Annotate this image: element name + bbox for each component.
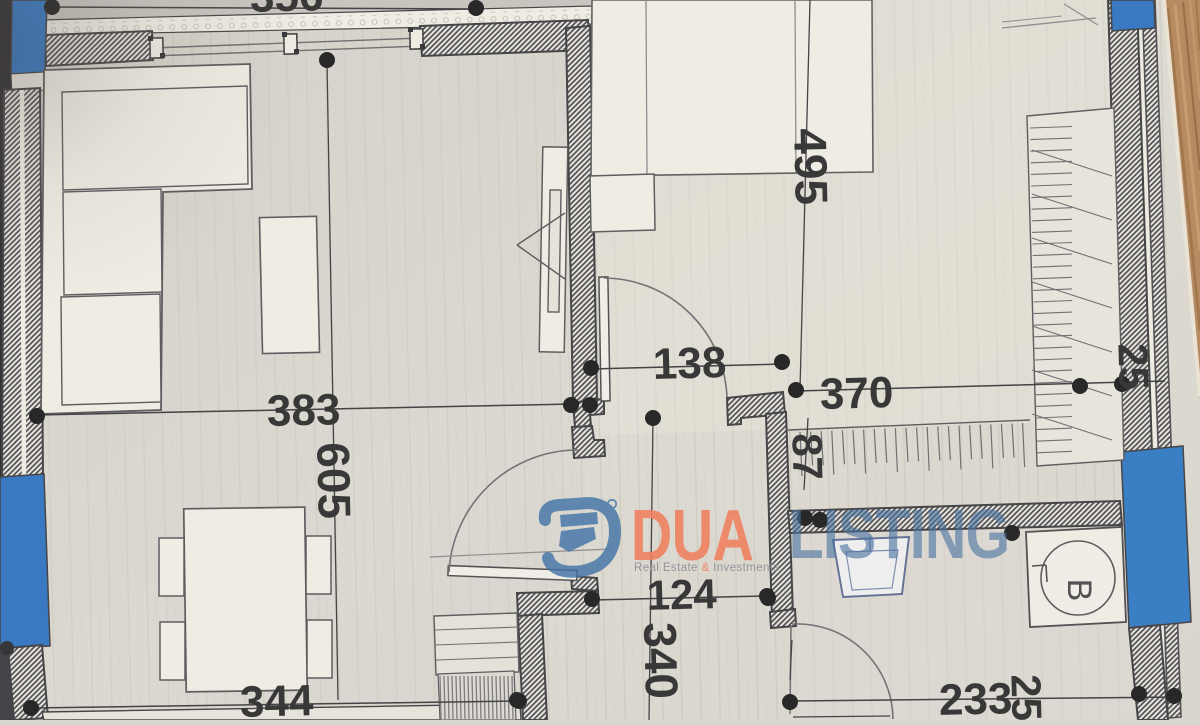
svg-text:Real Estate & Investments: Real Estate & Investments [634, 562, 780, 574]
svg-text:LISTING: LISTING [789, 495, 1010, 574]
